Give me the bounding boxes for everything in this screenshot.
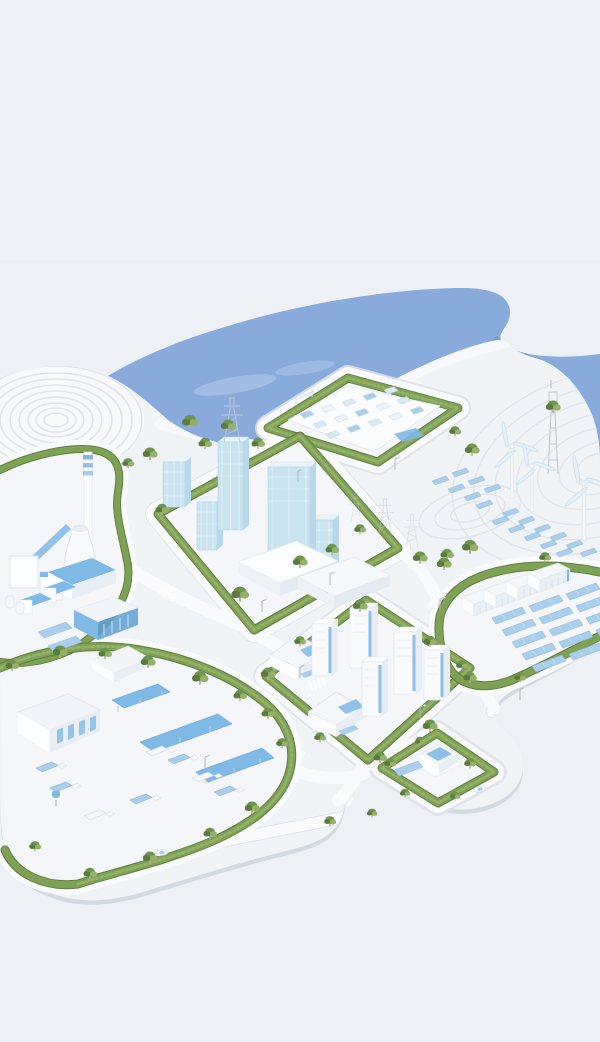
residential-tower [394,627,422,694]
glass-office-tower [218,437,249,530]
residential-tower [362,657,388,716]
glass-office-tower [163,457,191,507]
sky-highlight [0,0,600,260]
plant-block [10,556,38,588]
residential-tower [424,645,450,700]
hero-illustration-canvas [0,0,600,1042]
industrial-park-illustration [0,0,600,1042]
residential-tower [312,619,338,676]
